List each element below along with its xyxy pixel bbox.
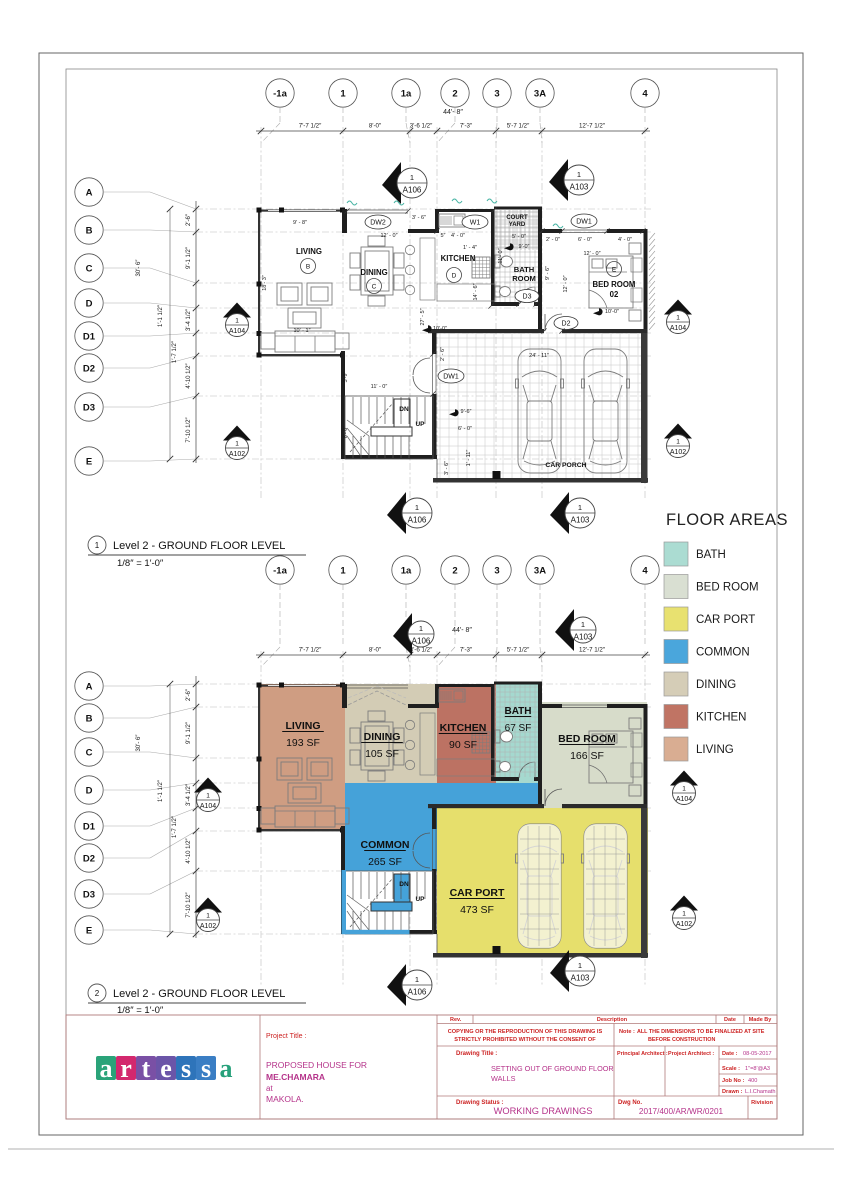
svg-text:3: 3 bbox=[494, 565, 499, 576]
svg-text:Rivision: Rivision bbox=[751, 1100, 773, 1106]
svg-text:2: 2 bbox=[452, 88, 457, 99]
svg-text:7′-3″: 7′-3″ bbox=[460, 647, 473, 654]
svg-text:B: B bbox=[306, 264, 310, 271]
svg-text:A106: A106 bbox=[408, 988, 427, 997]
svg-text:3′-4 1/2″: 3′-4 1/2″ bbox=[186, 783, 192, 806]
svg-text:D3: D3 bbox=[83, 402, 95, 413]
svg-text:A104: A104 bbox=[229, 328, 245, 335]
svg-text:Dwg No.: Dwg No. bbox=[618, 1100, 642, 1106]
svg-text:10′-0″: 10′-0″ bbox=[605, 309, 619, 315]
svg-text:A102: A102 bbox=[200, 923, 216, 930]
svg-text:BED ROOM: BED ROOM bbox=[696, 582, 759, 594]
svg-text:DW2: DW2 bbox=[370, 220, 386, 227]
svg-text:3A: 3A bbox=[534, 88, 546, 99]
svg-text:Drawing Title :: Drawing Title : bbox=[456, 1051, 497, 1057]
svg-text:r: r bbox=[120, 1054, 132, 1083]
svg-text:BATH: BATH bbox=[514, 265, 535, 274]
svg-text:7′-3″: 7′-3″ bbox=[460, 123, 473, 130]
svg-text:COMMON: COMMON bbox=[361, 839, 410, 851]
svg-text:1′-7 1/2″: 1′-7 1/2″ bbox=[172, 815, 178, 838]
svg-text:LIVING: LIVING bbox=[285, 720, 320, 732]
svg-text:A102: A102 bbox=[670, 449, 686, 456]
svg-text:3′ - 6″: 3′ - 6″ bbox=[412, 215, 426, 221]
svg-text:3′-6 1/2″: 3′-6 1/2″ bbox=[410, 123, 433, 130]
svg-text:D: D bbox=[452, 273, 457, 280]
svg-text:193 SF: 193 SF bbox=[286, 737, 320, 749]
svg-text:a: a bbox=[220, 1054, 233, 1083]
svg-text:D3: D3 bbox=[523, 294, 532, 301]
svg-text:Date :: Date : bbox=[722, 1051, 738, 1057]
svg-text:A103: A103 bbox=[571, 974, 590, 983]
svg-text:2017/400/AR/WR/0201: 2017/400/AR/WR/0201 bbox=[639, 1107, 724, 1116]
svg-text:1a: 1a bbox=[401, 88, 412, 99]
svg-text:7′-10 1/2″: 7′-10 1/2″ bbox=[186, 891, 192, 917]
svg-text:08-05-2017: 08-05-2017 bbox=[743, 1051, 772, 1057]
svg-text:Rev.: Rev. bbox=[450, 1017, 462, 1023]
svg-text:2′ - 6″: 2′ - 6″ bbox=[440, 347, 446, 361]
svg-text:A103: A103 bbox=[570, 183, 589, 192]
svg-text:MAKOLA.: MAKOLA. bbox=[266, 1094, 304, 1104]
svg-text:C: C bbox=[86, 263, 93, 274]
svg-text:12′-7 1/2″: 12′-7 1/2″ bbox=[579, 647, 606, 654]
svg-text:D2: D2 bbox=[83, 853, 95, 864]
svg-text:1: 1 bbox=[578, 503, 582, 512]
svg-text:1′ - 4″: 1′ - 4″ bbox=[463, 245, 477, 251]
svg-text:Job No :: Job No : bbox=[722, 1078, 745, 1084]
svg-text:ALL THE DIMENSIONS TO BE FINAL: ALL THE DIMENSIONS TO BE FINALIZED AT SI… bbox=[637, 1029, 765, 1035]
svg-text:4′ - 0″: 4′ - 0″ bbox=[451, 233, 465, 239]
svg-text:1: 1 bbox=[235, 441, 239, 448]
svg-text:t: t bbox=[142, 1054, 151, 1083]
svg-text:1/8″ = 1′-0″: 1/8″ = 1′-0″ bbox=[117, 558, 164, 569]
svg-text:105 SF: 105 SF bbox=[365, 748, 399, 760]
svg-text:s: s bbox=[201, 1054, 211, 1083]
svg-text:BED ROOM: BED ROOM bbox=[558, 733, 616, 745]
svg-text:3: 3 bbox=[494, 88, 499, 99]
svg-text:W1: W1 bbox=[470, 220, 481, 227]
svg-text:9′ - 8″: 9′ - 8″ bbox=[293, 220, 307, 226]
svg-text:KITCHEN: KITCHEN bbox=[441, 254, 476, 263]
svg-text:2: 2 bbox=[95, 989, 100, 998]
svg-text:2′-6″: 2′-6″ bbox=[186, 688, 192, 701]
svg-text:9′ - 6″: 9′ - 6″ bbox=[545, 266, 551, 280]
svg-text:1′-7 1/2″: 1′-7 1/2″ bbox=[172, 340, 178, 363]
svg-text:18′- 3″: 18′- 3″ bbox=[262, 275, 268, 291]
svg-text:ROOM: ROOM bbox=[512, 274, 536, 283]
svg-text:1: 1 bbox=[340, 565, 346, 576]
svg-text:1: 1 bbox=[578, 961, 582, 970]
svg-text:B: B bbox=[86, 225, 93, 236]
svg-text:A104: A104 bbox=[676, 796, 692, 803]
svg-text:9′-6″: 9′-6″ bbox=[461, 409, 472, 415]
svg-text:5′-7 1/2″: 5′-7 1/2″ bbox=[507, 647, 530, 654]
svg-text:BEFORE CONSTRUCTION: BEFORE CONSTRUCTION bbox=[648, 1037, 715, 1043]
svg-text:DINING: DINING bbox=[364, 731, 401, 743]
svg-text:Scale :: Scale : bbox=[722, 1066, 740, 1072]
svg-text:FLOOR AREAS: FLOOR AREAS bbox=[666, 511, 788, 529]
svg-text:C: C bbox=[86, 747, 93, 758]
svg-text:1: 1 bbox=[340, 88, 346, 99]
svg-text:YARD: YARD bbox=[509, 222, 526, 228]
svg-text:E: E bbox=[86, 456, 92, 467]
svg-text:1: 1 bbox=[682, 911, 686, 918]
svg-text:Project Architect :: Project Architect : bbox=[668, 1051, 714, 1057]
svg-text:CAR PORT: CAR PORT bbox=[696, 614, 755, 626]
svg-text:400: 400 bbox=[748, 1078, 757, 1084]
svg-text:PROPOSED HOUSE FOR: PROPOSED HOUSE FOR bbox=[266, 1060, 367, 1070]
svg-text:Level 2 - GROUND FLOOR LEVEL: Level 2 - GROUND FLOOR LEVEL bbox=[113, 988, 285, 1000]
svg-text:D2: D2 bbox=[83, 363, 95, 374]
svg-text:4′-10 1/2″: 4′-10 1/2″ bbox=[186, 837, 192, 863]
svg-text:1: 1 bbox=[415, 503, 419, 512]
svg-text:7′-7 1/2″: 7′-7 1/2″ bbox=[299, 647, 322, 654]
svg-text:11′- 0″: 11′- 0″ bbox=[498, 248, 504, 263]
svg-text:10′ - 1″: 10′ - 1″ bbox=[293, 328, 310, 334]
svg-text:473 SF: 473 SF bbox=[460, 904, 494, 916]
svg-text:1: 1 bbox=[415, 975, 419, 984]
svg-text:A106: A106 bbox=[408, 516, 427, 525]
svg-text:90 SF: 90 SF bbox=[449, 739, 477, 751]
svg-text:02: 02 bbox=[610, 290, 619, 299]
svg-text:2: 2 bbox=[452, 565, 457, 576]
svg-text:8′- 0″: 8′- 0″ bbox=[343, 426, 349, 439]
svg-text:L.I.Chamath: L.I.Chamath bbox=[745, 1089, 775, 1095]
svg-text:A106: A106 bbox=[412, 637, 431, 646]
svg-text:1: 1 bbox=[95, 541, 100, 550]
svg-text:24′ - 11″: 24′ - 11″ bbox=[529, 353, 549, 359]
svg-text:E: E bbox=[86, 925, 92, 936]
svg-text:4: 4 bbox=[642, 88, 648, 99]
svg-text:Level 2 - GROUND FLOOR LEVEL: Level 2 - GROUND FLOOR LEVEL bbox=[113, 540, 285, 552]
svg-text:DW1: DW1 bbox=[576, 219, 592, 226]
svg-text:STRICTLY PROHIBITED WITHOUT TH: STRICTLY PROHIBITED WITHOUT THE CONSENT … bbox=[454, 1037, 596, 1043]
svg-text:B: B bbox=[86, 713, 93, 724]
svg-text:A102: A102 bbox=[229, 451, 245, 458]
svg-text:1: 1 bbox=[577, 170, 581, 179]
svg-text:at: at bbox=[266, 1084, 273, 1093]
svg-text:a: a bbox=[100, 1054, 113, 1083]
svg-text:9′-0″: 9′-0″ bbox=[519, 244, 530, 250]
svg-text:8′-0″: 8′-0″ bbox=[369, 123, 382, 130]
svg-text:Description: Description bbox=[597, 1017, 628, 1023]
svg-text:1: 1 bbox=[676, 315, 680, 322]
svg-text:166 SF: 166 SF bbox=[570, 750, 604, 762]
svg-text:9′-1 1/2″: 9′-1 1/2″ bbox=[186, 246, 192, 269]
svg-text:6′ - 0″: 6′ - 0″ bbox=[578, 237, 592, 243]
svg-text:5′-9″: 5′-9″ bbox=[343, 371, 349, 382]
svg-text:8′-0″: 8′-0″ bbox=[369, 647, 382, 654]
svg-text:COPYING OR THE REPRODUCTION OF: COPYING OR THE REPRODUCTION OF THIS DRAW… bbox=[448, 1029, 603, 1035]
svg-text:KITCHEN: KITCHEN bbox=[440, 722, 487, 734]
svg-text:30′- 6″: 30′- 6″ bbox=[136, 734, 142, 752]
svg-text:CAR PORCH: CAR PORCH bbox=[545, 462, 586, 469]
svg-text:E: E bbox=[612, 267, 617, 274]
svg-text:30′- 6″: 30′- 6″ bbox=[136, 259, 142, 277]
svg-text:11′ - 0″: 11′ - 0″ bbox=[371, 384, 388, 390]
svg-text:A: A bbox=[86, 681, 93, 692]
svg-text:12′-7 1/2″: 12′-7 1/2″ bbox=[579, 123, 606, 130]
svg-text:1′-1 1/2″: 1′-1 1/2″ bbox=[158, 779, 164, 802]
svg-text:1′ - 11″: 1′ - 11″ bbox=[466, 450, 472, 467]
svg-text:1/8″ = 1′-0″: 1/8″ = 1′-0″ bbox=[117, 1005, 164, 1016]
svg-text:4′ - 0″: 4′ - 0″ bbox=[618, 237, 632, 243]
svg-text:44′- 8″: 44′- 8″ bbox=[443, 109, 463, 116]
svg-text:A103: A103 bbox=[574, 633, 593, 642]
svg-text:-1a: -1a bbox=[273, 88, 287, 99]
svg-text:1′-1 1/2″: 1′-1 1/2″ bbox=[158, 304, 164, 327]
svg-text:Date: Date bbox=[724, 1017, 736, 1023]
svg-text:3′-6 1/2″: 3′-6 1/2″ bbox=[410, 647, 433, 654]
svg-text:1a: 1a bbox=[401, 565, 412, 576]
svg-text:1: 1 bbox=[235, 318, 239, 325]
svg-text:D: D bbox=[86, 298, 93, 309]
svg-text:12′ - 0″: 12′ - 0″ bbox=[380, 233, 397, 239]
svg-text:1: 1 bbox=[676, 439, 680, 446]
svg-text:Principal Architect :: Principal Architect : bbox=[617, 1051, 668, 1057]
svg-text:14′ - 6″: 14′ - 6″ bbox=[473, 283, 479, 300]
svg-text:Drawn :: Drawn : bbox=[722, 1089, 743, 1095]
svg-text:BATH: BATH bbox=[696, 549, 726, 561]
svg-text:D2: D2 bbox=[562, 321, 571, 328]
svg-text:10′-0″: 10′-0″ bbox=[433, 326, 447, 332]
svg-text:LIVING: LIVING bbox=[696, 744, 734, 756]
svg-text:1: 1 bbox=[419, 624, 423, 633]
svg-text:CAR PORT: CAR PORT bbox=[450, 887, 505, 899]
svg-text:1: 1 bbox=[206, 913, 210, 920]
svg-text:Project Title :: Project Title : bbox=[266, 1033, 307, 1040]
svg-text:3′-4 1/2″: 3′-4 1/2″ bbox=[186, 308, 192, 331]
svg-text:1: 1 bbox=[682, 786, 686, 793]
svg-text:9′-1 1/2″: 9′-1 1/2″ bbox=[186, 721, 192, 744]
svg-text:7′-7 1/2″: 7′-7 1/2″ bbox=[299, 123, 322, 130]
svg-text:A102: A102 bbox=[676, 921, 692, 928]
svg-text:ME.CHAMARA: ME.CHAMARA bbox=[266, 1072, 325, 1082]
svg-text:27′ - 5″: 27′ - 5″ bbox=[420, 308, 426, 325]
svg-text:1: 1 bbox=[410, 173, 414, 182]
svg-text:1: 1 bbox=[206, 793, 210, 800]
svg-text:2′ - 0″: 2′ - 0″ bbox=[546, 237, 560, 243]
svg-text:Note :: Note : bbox=[619, 1029, 635, 1035]
svg-text:3A: 3A bbox=[534, 565, 546, 576]
svg-text:KITCHEN: KITCHEN bbox=[696, 712, 746, 724]
svg-text:67 SF: 67 SF bbox=[505, 723, 532, 734]
svg-text:4′-10 1/2″: 4′-10 1/2″ bbox=[186, 362, 192, 388]
svg-text:A: A bbox=[86, 187, 93, 198]
svg-text:2′-6″: 2′-6″ bbox=[186, 213, 192, 226]
svg-text:A104: A104 bbox=[200, 803, 216, 810]
svg-text:A103: A103 bbox=[571, 516, 590, 525]
svg-text:BATH: BATH bbox=[504, 706, 531, 717]
svg-text:-1a: -1a bbox=[273, 565, 287, 576]
svg-text:s: s bbox=[181, 1054, 191, 1083]
svg-text:1: 1 bbox=[581, 620, 585, 629]
svg-text:D: D bbox=[86, 785, 93, 796]
svg-text:3′ - 6″: 3′ - 6″ bbox=[444, 461, 450, 475]
svg-text:5′-7 1/2″: 5′-7 1/2″ bbox=[507, 123, 530, 130]
svg-text:1″=8′@A3: 1″=8′@A3 bbox=[745, 1066, 770, 1072]
svg-text:C: C bbox=[372, 284, 377, 291]
svg-text:D1: D1 bbox=[83, 331, 96, 342]
svg-text:5″: 5″ bbox=[440, 233, 445, 239]
svg-text:DINING: DINING bbox=[360, 268, 387, 277]
svg-text:D3: D3 bbox=[83, 889, 95, 900]
svg-text:DW1: DW1 bbox=[443, 374, 459, 381]
svg-text:DINING: DINING bbox=[696, 679, 736, 691]
svg-text:COMMON: COMMON bbox=[696, 647, 750, 659]
svg-text:Made By: Made By bbox=[749, 1017, 773, 1023]
svg-text:D1: D1 bbox=[83, 821, 96, 832]
svg-text:4: 4 bbox=[642, 565, 648, 576]
svg-text:e: e bbox=[160, 1054, 172, 1083]
svg-text:12′ - 0″: 12′ - 0″ bbox=[563, 275, 569, 292]
svg-text:7′-10 1/2″: 7′-10 1/2″ bbox=[186, 416, 192, 442]
svg-text:12′ - 0″: 12′ - 0″ bbox=[583, 251, 600, 257]
svg-text:265 SF: 265 SF bbox=[368, 856, 402, 868]
svg-text:6′ - 0″: 6′ - 0″ bbox=[458, 426, 472, 432]
svg-text:44′- 8″: 44′- 8″ bbox=[452, 627, 472, 634]
svg-text:LIVING: LIVING bbox=[296, 247, 322, 256]
svg-text:A106: A106 bbox=[403, 186, 422, 195]
svg-text:COURT: COURT bbox=[506, 215, 528, 221]
svg-text:BED ROOM: BED ROOM bbox=[593, 280, 636, 289]
svg-text:A104: A104 bbox=[670, 325, 686, 332]
svg-text:WORKING DRAWINGS: WORKING DRAWINGS bbox=[494, 1106, 593, 1116]
svg-text:SETTING OUT OF GROUND FLOOR: SETTING OUT OF GROUND FLOOR bbox=[491, 1064, 614, 1073]
svg-text:WALLS: WALLS bbox=[491, 1074, 516, 1083]
svg-text:5′ - 0″: 5′ - 0″ bbox=[512, 234, 526, 240]
